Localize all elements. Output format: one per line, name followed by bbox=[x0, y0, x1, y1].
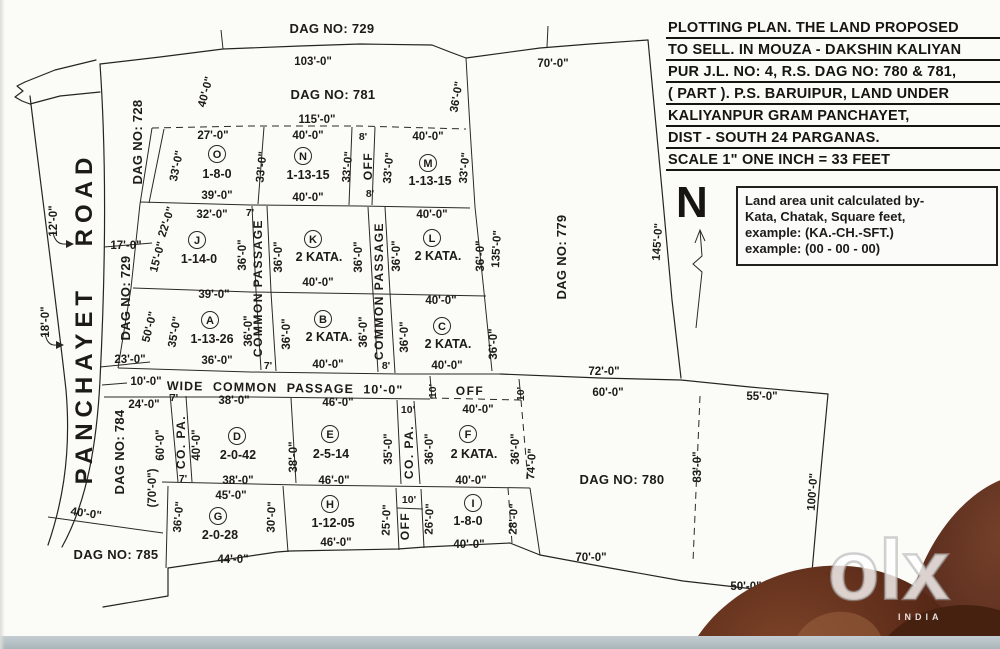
dim-o-n-shared: 33'-0" bbox=[254, 151, 269, 183]
off3-passage-label: OFF bbox=[398, 512, 412, 541]
dim-36-top: 36'-0" bbox=[448, 81, 465, 114]
dim-70-bottom: 70'-0" bbox=[575, 552, 606, 564]
plot-o-left-edge bbox=[149, 129, 164, 203]
dag-728-label: DAG NO: 728 bbox=[130, 100, 145, 185]
dim-115: 115'-0" bbox=[299, 114, 336, 126]
plot-B: B 2 KATA. bbox=[306, 311, 353, 345]
dim-70-paren: (70'-0") bbox=[147, 468, 159, 507]
dim-i-right: 28'-0" bbox=[507, 503, 520, 535]
dim-c-bottom: 40'-0" bbox=[431, 360, 462, 372]
north-arrow bbox=[693, 230, 705, 328]
slant-40ft bbox=[48, 517, 163, 533]
legend-line: Kata, Chatak, Square feet, bbox=[745, 209, 989, 225]
survey-tick bbox=[547, 26, 548, 47]
dim-135: 135'-0" bbox=[490, 230, 504, 268]
road-bend-jag bbox=[15, 82, 30, 104]
dim-o-left: 33'-0" bbox=[168, 149, 186, 182]
photo-left-edge bbox=[0, 0, 5, 649]
dag-729-top-label: DAG NO: 729 bbox=[290, 21, 375, 36]
dim-24: 24'-0" bbox=[128, 399, 159, 411]
common-passage-2-label: COMMON PASSAGE bbox=[372, 222, 386, 360]
plot-N-id: N bbox=[299, 151, 307, 163]
plot-N-area: 1-13-15 bbox=[286, 168, 329, 182]
plot-K: K 2 KATA. bbox=[296, 231, 343, 265]
plot-M: M 1-13-15 bbox=[408, 155, 451, 189]
dim-g-bottom: 44'-0" bbox=[217, 554, 248, 566]
dim-off2-left-10: 10' bbox=[427, 384, 439, 398]
legend-line: example: (00 - 00 - 00) bbox=[745, 241, 989, 257]
dim-l-top: 40'-0" bbox=[416, 209, 447, 221]
dim-c-top: 40'-0" bbox=[425, 295, 456, 307]
dim-f-right: 36'-0" bbox=[510, 433, 522, 464]
survey-tick bbox=[221, 30, 223, 49]
dim-l-right: 36'-0" bbox=[475, 240, 487, 271]
plot-F-id: F bbox=[465, 429, 472, 441]
dim-g-right: 30'-0" bbox=[265, 501, 278, 533]
dag-785-label: DAG NO: 785 bbox=[74, 547, 159, 562]
plot-L-area: 2 KATA. bbox=[415, 249, 462, 263]
dim-off1-bottom: 8' bbox=[366, 188, 374, 200]
dim-83: 83'-0" bbox=[692, 451, 704, 482]
dim-17: 17'-0" bbox=[110, 240, 141, 252]
plot-H: H 1-12-05 bbox=[311, 496, 354, 531]
dim-e-bottom: 46'-0" bbox=[318, 475, 349, 487]
dim-f-left: 36'-0" bbox=[424, 433, 436, 464]
plot-B-id: B bbox=[319, 314, 327, 326]
dim-road-18: 18'-0" bbox=[40, 306, 52, 337]
plot-H-area: 1-12-05 bbox=[311, 516, 354, 530]
title-line: PUR J.L. NO: 4, R.S. DAG NO: 780 & 781, bbox=[666, 64, 1000, 83]
plot-G: G 2-0-28 bbox=[202, 508, 238, 543]
legend-line: example: (KA.-CH.-SFT.) bbox=[745, 225, 989, 241]
dim-h-bottom: 46'-0" bbox=[320, 537, 351, 549]
dim-60: 60'-0" bbox=[155, 429, 167, 460]
wide-common-passage-label: WIDE COMMON PASSAGE 10'-0" bbox=[167, 379, 404, 397]
plot-N: N 1-13-15 bbox=[286, 148, 329, 183]
dim-passage1-7ft-bottom: 7' bbox=[264, 360, 272, 372]
off2-passage-label: OFF bbox=[456, 384, 485, 398]
title-line: KALIYANPUR GRAM PANCHAYET, bbox=[666, 108, 1000, 127]
dim-k-right: 36'-0" bbox=[353, 241, 365, 272]
dim-145: 145'-0" bbox=[651, 223, 666, 261]
dim-40-top: 40'-0" bbox=[196, 75, 216, 108]
plot-C-area: 2 KATA. bbox=[425, 337, 472, 351]
plot-I: I 1-8-0 bbox=[453, 495, 482, 529]
title-line: SCALE 1" ONE INCH = 33 FEET bbox=[666, 152, 1000, 171]
plot-O: O 1-8-0 bbox=[202, 146, 231, 182]
plot-G-area: 2-0-28 bbox=[202, 528, 238, 542]
block-left-row5 bbox=[166, 486, 168, 568]
south-boundary-step bbox=[103, 568, 168, 607]
dim-d-left: 40'-0" bbox=[191, 429, 203, 460]
dim-k-bottom: 40'-0" bbox=[302, 277, 333, 289]
dim-k-left: 36'-0" bbox=[273, 241, 285, 272]
plot-A-area: 1-13-26 bbox=[190, 332, 233, 346]
dim-55: 55'-0" bbox=[746, 391, 777, 403]
dim-m-right: 33'-0" bbox=[458, 152, 473, 184]
title-line: PLOTTING PLAN. THE LAND PROPOSED bbox=[666, 20, 1000, 39]
dim-m-top: 40'-0" bbox=[412, 131, 443, 143]
dag-781-label: DAG NO: 781 bbox=[291, 87, 376, 102]
dim-103: 103'-0" bbox=[294, 56, 332, 68]
dim-b-left: 36'-0" bbox=[281, 318, 293, 349]
row1-top-dashed bbox=[152, 126, 466, 129]
dag-729-left-label: DAG NO: 729 bbox=[118, 256, 133, 341]
passage1-right-r2 bbox=[267, 206, 271, 292]
title-block: PLOTTING PLAN. THE LAND PROPOSED TO SELL… bbox=[666, 20, 1000, 174]
dim-d-bottom: 38'-0" bbox=[222, 475, 253, 487]
off1-passage-label: OFF bbox=[361, 152, 375, 181]
dim-h-right: 25'-0" bbox=[380, 504, 393, 536]
dim-a-left: 35'-0" bbox=[166, 316, 183, 349]
photo-bottom-edge bbox=[0, 636, 1000, 649]
plot-L-id: L bbox=[429, 233, 436, 245]
dag-780-label: DAG NO: 780 bbox=[580, 472, 665, 487]
dim-j-15: 15'-0" bbox=[148, 240, 168, 273]
dim-j-right: 36'-0" bbox=[237, 239, 249, 270]
dim-a-top: 39'-0" bbox=[198, 289, 229, 301]
plot-B-area: 2 KATA. bbox=[306, 330, 353, 344]
plot-E: E 2-5-14 bbox=[313, 426, 349, 462]
panchayet-road-label: PANCHAYET ROAD bbox=[71, 152, 98, 485]
dim-n-right: 33'-0" bbox=[341, 151, 356, 183]
line-10ft bbox=[102, 383, 127, 385]
plot-I-area: 1-8-0 bbox=[453, 514, 482, 528]
dim-i-left: 26'-0" bbox=[423, 503, 436, 535]
dim-copa1-7ft-bottom: 7' bbox=[179, 473, 187, 485]
plot-J-area: 1-14-0 bbox=[181, 252, 217, 266]
dim-j-top: 32'-0" bbox=[196, 209, 227, 221]
dim-e-top: 46'-0" bbox=[322, 397, 353, 409]
plot-J-id: J bbox=[194, 235, 200, 247]
dim-c-right: 36'-0" bbox=[488, 328, 500, 359]
plot-D-area: 2-0-42 bbox=[220, 448, 256, 462]
divider-g-h bbox=[283, 486, 288, 552]
dim-e-left: 38'-0" bbox=[288, 441, 300, 472]
plot-D-id: D bbox=[233, 431, 241, 443]
olx-watermark-country: INDIA bbox=[898, 612, 943, 622]
north-letter: N bbox=[676, 178, 708, 228]
dim-e-right: 35'-0" bbox=[383, 433, 395, 464]
plot-K-id: K bbox=[309, 234, 317, 246]
plot-E-area: 2-5-14 bbox=[313, 447, 349, 461]
dim-j-22: 22'-0" bbox=[156, 205, 177, 238]
mid-boundary-72-55 bbox=[500, 374, 828, 394]
dim-g-left: 36'-0" bbox=[172, 501, 187, 533]
plot-L: L 2 KATA. bbox=[415, 230, 462, 264]
road-bend-stub bbox=[25, 60, 96, 82]
plot-M-id: M bbox=[423, 158, 432, 170]
dim-road-12: 12'-0" bbox=[48, 205, 60, 236]
plot-C: C 2 KATA. bbox=[425, 318, 472, 352]
dim-50: 50'-0" bbox=[140, 310, 159, 343]
legend-line: Land area unit calculated by- bbox=[745, 193, 989, 209]
off3-tick bbox=[397, 508, 423, 509]
plot-M-area: 1-13-15 bbox=[408, 174, 451, 188]
plot-I-id: I bbox=[471, 498, 474, 510]
dim-m-left: 33'-0" bbox=[382, 152, 397, 184]
dim-f-bottom: 40'-0" bbox=[455, 475, 486, 487]
dim-b-bottom: 40'-0" bbox=[312, 359, 343, 371]
plot-J: J 1-14-0 bbox=[181, 232, 217, 267]
plot-C-id: C bbox=[438, 321, 446, 333]
dim-23: 23'-0" bbox=[114, 354, 145, 366]
copa1-label: CO. PA. bbox=[174, 415, 188, 469]
dim-a-right: 36'-0" bbox=[243, 315, 255, 346]
dim-72: 72'-0" bbox=[588, 366, 619, 378]
title-line: DIST - SOUTH 24 PARGANAS. bbox=[666, 130, 1000, 149]
title-line: TO SELL. IN MOUZA - DAKSHIN KALIYAN bbox=[666, 42, 1000, 61]
olx-watermark: olx bbox=[828, 528, 949, 612]
plot-H-id: H bbox=[326, 499, 334, 511]
dim-copa2-10ft: 10' bbox=[401, 404, 415, 416]
dim-passage1-7ft: 7' bbox=[246, 207, 254, 219]
road-bend-stub bbox=[30, 92, 100, 104]
dim-off1-top: 8' bbox=[359, 131, 367, 143]
plot-K-area: 2 KATA. bbox=[296, 250, 343, 264]
dim-d-top: 38'-0" bbox=[218, 395, 249, 407]
plot-A-id: A bbox=[206, 315, 214, 327]
block-se-edge bbox=[530, 488, 540, 555]
dag-779-label: DAG NO: 779 bbox=[554, 215, 569, 300]
dim-n-top: 40'-0" bbox=[292, 130, 323, 142]
plot-O-area: 1-8-0 bbox=[202, 167, 231, 181]
dim-c-left: 36'-0" bbox=[399, 321, 411, 352]
dim-n-bottom: 40'-0" bbox=[292, 192, 323, 204]
dag-784-label: DAG NO: 784 bbox=[112, 409, 127, 494]
dim-60-right: 60'-0" bbox=[592, 387, 623, 399]
plot-F: F 2 KATA. bbox=[451, 426, 498, 462]
dim-off2-right-10: 10' bbox=[515, 387, 527, 401]
dim-o-bottom: 39'-0" bbox=[201, 190, 232, 202]
dim-l-left: 36'-0" bbox=[391, 240, 403, 271]
dim-copa1-7ft: 7' bbox=[170, 392, 178, 404]
dim-g-top: 45'-0" bbox=[215, 490, 246, 502]
plot-F-area: 2 KATA. bbox=[451, 447, 498, 461]
plot-G-id: G bbox=[214, 511, 223, 523]
dim-f-top: 40'-0" bbox=[462, 404, 493, 416]
dim-i-bottom: 40'-0" bbox=[453, 539, 484, 551]
plot-plan-photo: DAG NO: 729 103'-0" 40'-0" DAG NO: 781 1… bbox=[0, 0, 1000, 649]
plot-A: A 1-13-26 bbox=[190, 312, 233, 347]
passage2-right-r3 bbox=[390, 293, 395, 373]
block-east-edge bbox=[466, 58, 492, 371]
off2-bottom-dashed bbox=[430, 398, 521, 400]
plot-O-id: O bbox=[213, 149, 222, 161]
north-arrow-shaft bbox=[693, 230, 702, 328]
dim-b-right: 36'-0" bbox=[358, 316, 370, 347]
plot-grid-lines bbox=[104, 58, 700, 568]
plot-E-id: E bbox=[326, 429, 333, 441]
dim-10: 10'-0" bbox=[130, 376, 161, 388]
dim-passage2-8ft: 8' bbox=[382, 360, 390, 372]
plot-D: D 2-0-42 bbox=[220, 428, 256, 463]
title-line: ( PART ). P.S. BARUIPUR, LAND UNDER bbox=[666, 86, 1000, 105]
dim-off3-10ft: 10' bbox=[402, 494, 416, 506]
dim-74: 74'-0" bbox=[525, 448, 539, 480]
dim-o-top: 27'-0" bbox=[197, 130, 228, 142]
legend-box: Land area unit calculated by- Kata, Chat… bbox=[736, 186, 998, 266]
dim-a-bottom: 36'-0" bbox=[201, 355, 232, 367]
dim-70-top: 70'-0" bbox=[537, 58, 568, 70]
copa2-label: CO. PA. bbox=[402, 425, 416, 479]
